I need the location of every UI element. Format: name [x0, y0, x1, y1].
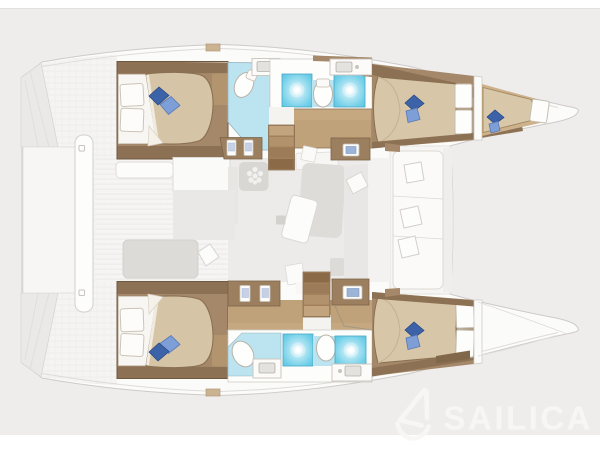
svg-text:SAILICA: SAILICA — [444, 400, 594, 437]
